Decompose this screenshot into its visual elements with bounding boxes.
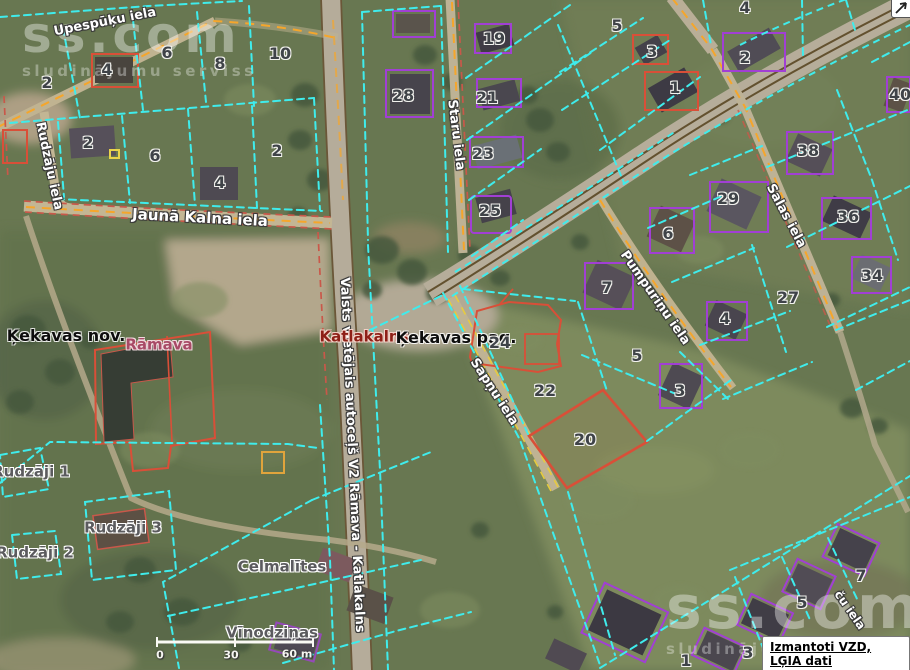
farm-label: Vīnodziņas xyxy=(226,626,318,641)
map-control-icon[interactable] xyxy=(891,0,910,18)
parcel-number: 1 xyxy=(680,653,691,669)
parcel-number: 24 xyxy=(489,335,511,351)
parcel-number: 29 xyxy=(717,191,739,207)
parcel-number: 19 xyxy=(483,31,505,47)
attribution-link[interactable]: Izmantoti VZD, LĢIA dati xyxy=(770,640,871,668)
map-canvas[interactable]: ss.com sludinājumu serviss ss.com sludin… xyxy=(0,0,910,670)
parcel-number: 27 xyxy=(777,290,799,306)
parcel-number: 2 xyxy=(271,143,282,159)
parcel-number: 10 xyxy=(269,46,291,62)
parcel-number: 28 xyxy=(392,88,414,104)
parcel-number: 21 xyxy=(476,90,498,106)
parcel-number: 6 xyxy=(149,148,160,164)
scale-bar-label: 60 m xyxy=(282,649,313,660)
parcel-number: 2 xyxy=(41,75,52,91)
parcel-number: 38 xyxy=(797,143,819,159)
parcel-number: 20 xyxy=(574,432,596,448)
parcel-number: 5 xyxy=(796,595,807,611)
farm-label: Rudzāji 1 xyxy=(0,465,70,480)
parcel-number: 36 xyxy=(837,209,859,225)
parcel-number: 4 xyxy=(101,62,112,78)
parcel-number: 6 xyxy=(662,226,673,242)
parcel-number: 34 xyxy=(861,268,883,284)
parcel-number: 3 xyxy=(742,645,753,661)
parcel-number: 2 xyxy=(739,50,750,66)
parcel-number: 7 xyxy=(601,280,612,296)
scale-bar-label: 0 xyxy=(156,650,164,661)
parcel-number: 40 xyxy=(889,87,910,103)
parcel-number: 3 xyxy=(674,383,685,399)
attribution-box: Izmantoti VZD, LĢIA dati xyxy=(762,636,910,670)
parcel-number: 6 xyxy=(161,45,172,61)
parcel-number: 8 xyxy=(214,56,225,72)
place-label: Rāmava xyxy=(125,338,192,353)
place-label: Ķekavas nov. xyxy=(7,328,126,344)
parcel-number: 5 xyxy=(631,348,642,364)
parcel-number: 4 xyxy=(719,311,730,327)
parcel-number: 25 xyxy=(479,203,501,219)
parcel-number: 2 xyxy=(82,135,93,151)
parcel-number: 4 xyxy=(214,175,225,191)
parcel-number: 3 xyxy=(646,44,657,60)
farm-label: Rudzāji 2 xyxy=(0,546,74,561)
farm-label: Celmalītes xyxy=(238,560,327,575)
parcel-number: 4 xyxy=(739,0,750,16)
farm-label: Rudzāji 3 xyxy=(84,521,162,536)
parcel-number: 7 xyxy=(855,568,866,584)
parcel-number: 23 xyxy=(472,146,494,162)
parcel-number: 22 xyxy=(534,383,556,399)
parcel-number: 5 xyxy=(611,18,622,34)
parcel-number: 1 xyxy=(669,80,680,96)
scale-bar-label: 30 xyxy=(223,650,238,661)
